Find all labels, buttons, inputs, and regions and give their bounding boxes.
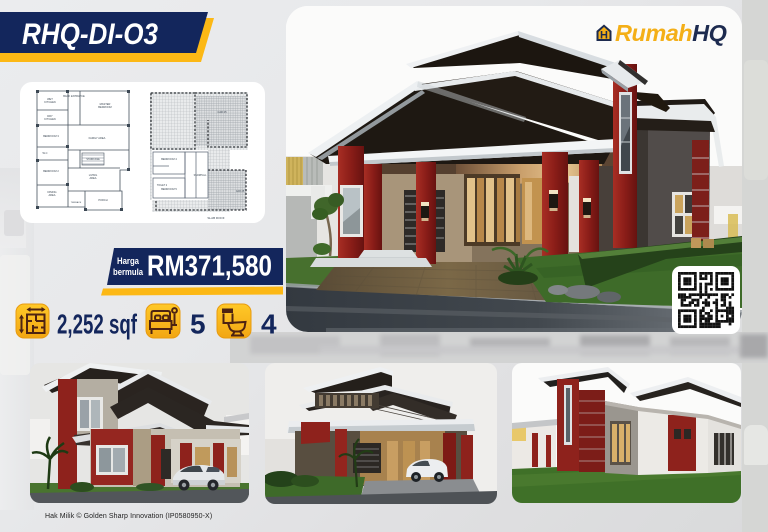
svg-text:TOILET 2: TOILET 2 bbox=[157, 184, 168, 187]
svg-text:BEDROOM 4: BEDROOM 4 bbox=[161, 157, 177, 161]
svg-text:W.C: W.C bbox=[43, 151, 48, 155]
svg-text:TERRACE: TERRACE bbox=[71, 201, 82, 204]
svg-text:RHQ-DI-O3: RHQ-DI-O3 bbox=[22, 18, 158, 51]
svg-text:5: 5 bbox=[190, 309, 206, 340]
svg-text:BEDROOM 5: BEDROOM 5 bbox=[161, 187, 177, 191]
svg-text:4: 4 bbox=[261, 309, 277, 340]
svg-text:STAIRHALL: STAIRHALL bbox=[194, 174, 208, 177]
svg-text:FAMILY AREA: FAMILY AREA bbox=[89, 136, 106, 140]
svg-text:BEDROOM 2: BEDROOM 2 bbox=[43, 169, 59, 173]
svg-text:BEDROOM 3: BEDROOM 3 bbox=[43, 134, 59, 138]
svg-text:RM371,580: RM371,580 bbox=[147, 251, 272, 283]
svg-text:AREA: AREA bbox=[48, 193, 55, 197]
svg-text:KITCHEN: KITCHEN bbox=[44, 117, 56, 121]
svg-text:SLAB ROOF: SLAB ROOF bbox=[207, 216, 224, 220]
svg-text:KITCHEN: KITCHEN bbox=[44, 100, 56, 104]
svg-text:AREA: AREA bbox=[89, 176, 96, 180]
svg-text:Harga: Harga bbox=[117, 256, 140, 266]
svg-text:BEDROOM: BEDROOM bbox=[98, 105, 111, 109]
svg-text:2,252 sqf: 2,252 sqf bbox=[57, 309, 137, 340]
svg-text:RumahHQ: RumahHQ bbox=[615, 22, 727, 46]
svg-text:STAIRCASE: STAIRCASE bbox=[86, 158, 100, 161]
svg-text:bermula: bermula bbox=[113, 267, 144, 277]
svg-text:BACK ENTRATCE: BACK ENTRATCE bbox=[63, 94, 85, 98]
svg-text:CAR 25: CAR 25 bbox=[236, 190, 245, 193]
svg-text:H: H bbox=[600, 30, 608, 42]
svg-text:PORCH: PORCH bbox=[98, 198, 107, 202]
svg-text:CAR 25: CAR 25 bbox=[217, 110, 227, 114]
